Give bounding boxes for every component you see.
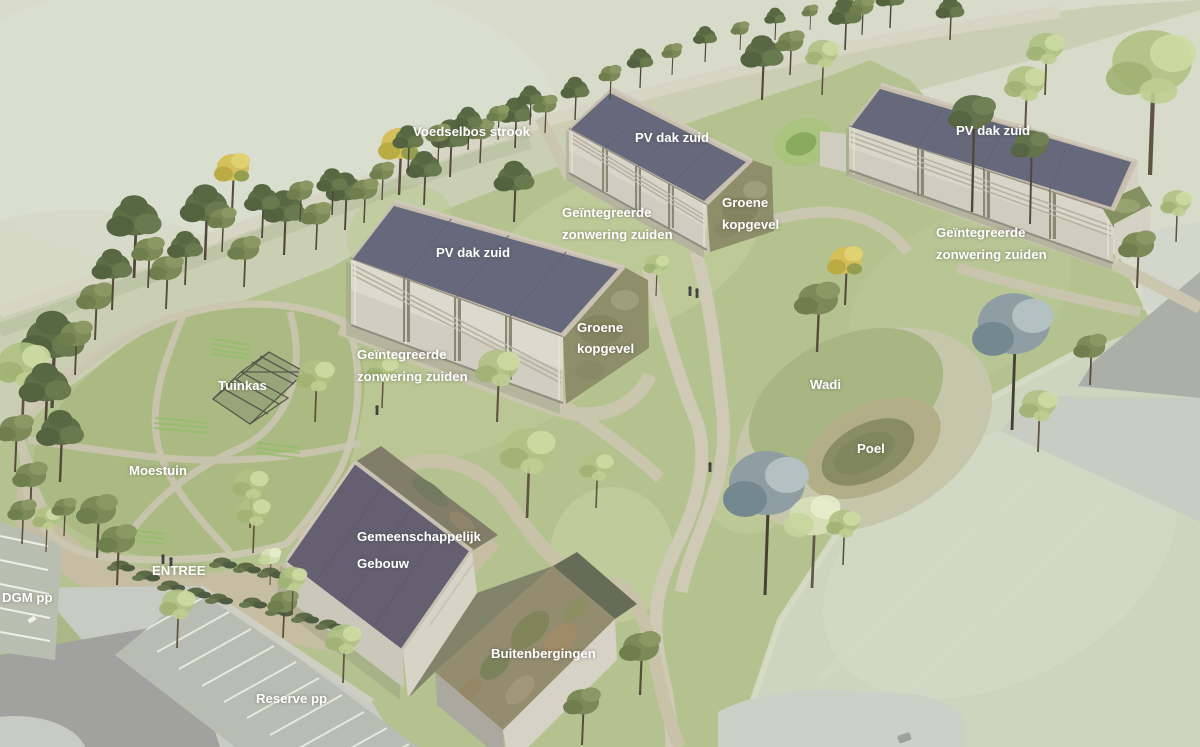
svg-text:zonwering zuiden: zonwering zuiden bbox=[936, 247, 1047, 262]
svg-text:ENTREE: ENTREE bbox=[152, 563, 206, 578]
svg-text:zonwering zuiden: zonwering zuiden bbox=[357, 369, 468, 384]
svg-text:Reserve pp: Reserve pp bbox=[256, 691, 327, 706]
svg-text:Groene: Groene bbox=[577, 320, 623, 335]
svg-text:Buitenbergingen: Buitenbergingen bbox=[491, 646, 596, 661]
svg-text:Groene: Groene bbox=[722, 195, 768, 210]
svg-text:Gebouw: Gebouw bbox=[357, 556, 410, 571]
svg-text:Geïntegreerde: Geïntegreerde bbox=[562, 205, 651, 220]
svg-text:DGM pp: DGM pp bbox=[2, 590, 53, 605]
svg-text:Geïntegreerde: Geïntegreerde bbox=[357, 347, 446, 362]
svg-text:PV dak zuid: PV dak zuid bbox=[956, 123, 1030, 138]
svg-text:zonwering zuiden: zonwering zuiden bbox=[562, 227, 673, 242]
svg-text:Gemeenschappelijk: Gemeenschappelijk bbox=[357, 529, 482, 544]
svg-text:kopgevel: kopgevel bbox=[577, 341, 634, 356]
svg-text:PV dak zuid: PV dak zuid bbox=[436, 245, 510, 260]
svg-text:Geïntegreerde: Geïntegreerde bbox=[936, 225, 1025, 240]
svg-text:kopgevel: kopgevel bbox=[722, 217, 779, 232]
svg-text:Voedselbos strook: Voedselbos strook bbox=[413, 124, 531, 139]
svg-text:Wadi: Wadi bbox=[810, 377, 841, 392]
svg-text:Tuinkas: Tuinkas bbox=[218, 378, 267, 393]
svg-text:Moestuin: Moestuin bbox=[129, 463, 187, 478]
svg-text:Poel: Poel bbox=[857, 441, 885, 456]
svg-text:PV dak zuid: PV dak zuid bbox=[635, 130, 709, 145]
